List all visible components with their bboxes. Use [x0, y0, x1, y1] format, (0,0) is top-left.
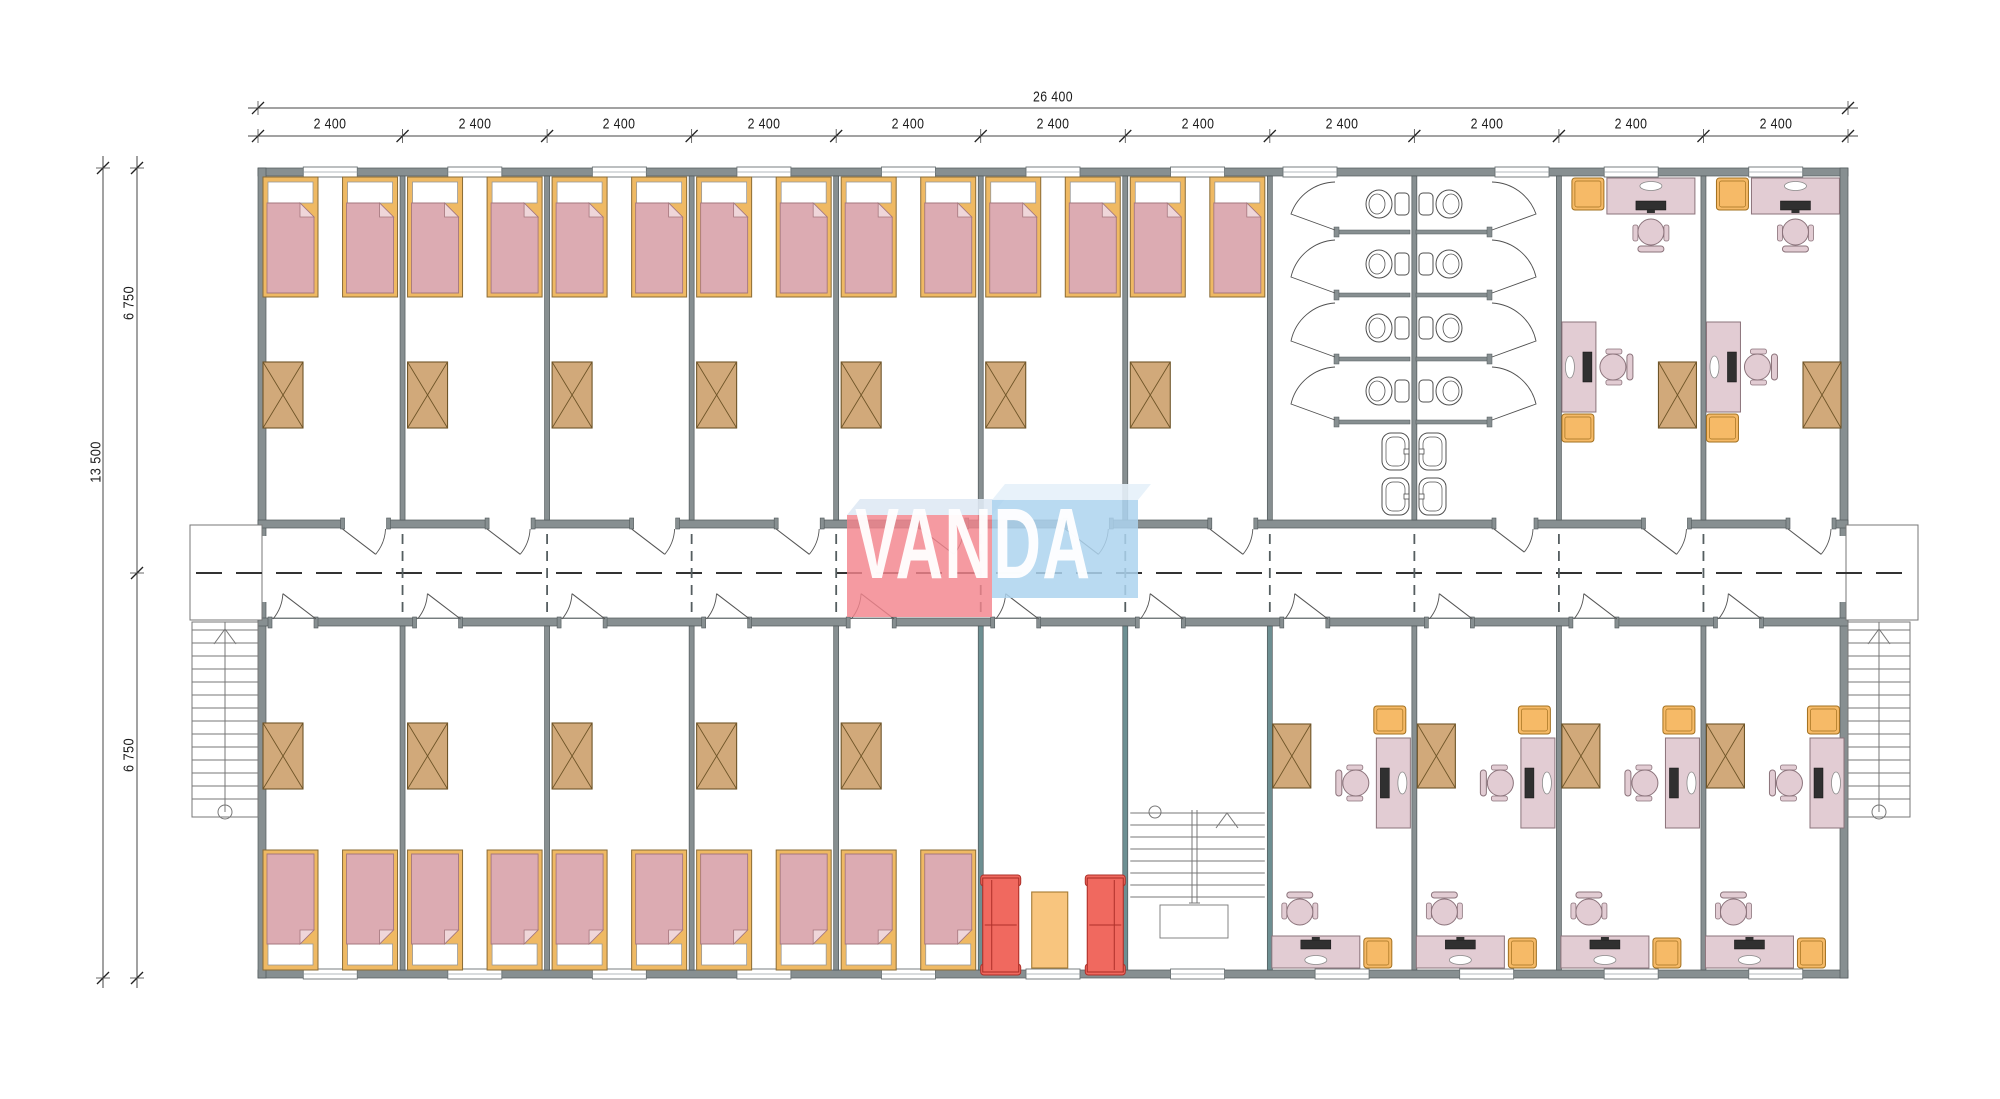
partition-wall-bottom [400, 626, 405, 970]
office-chair-part [1780, 796, 1796, 801]
door-leaf [1439, 594, 1472, 619]
door-opening [1426, 619, 1472, 629]
office-chair [1282, 892, 1318, 925]
wall-end-cap [1254, 518, 1258, 529]
wall-end-cap [557, 617, 561, 628]
dim-bay-label: 2 400 [1181, 116, 1214, 133]
office-chair-part [1431, 892, 1457, 898]
office-chair-part [1720, 892, 1746, 898]
office-chair-part [1633, 225, 1638, 241]
cabinet [1653, 938, 1681, 968]
dim-bay-label: 2 400 [603, 116, 636, 133]
wall-end-cap [413, 617, 417, 628]
bed-pillow [846, 944, 891, 965]
door-opening [1643, 519, 1689, 529]
computer-monitor [1525, 768, 1534, 798]
office-chair-part [1780, 765, 1796, 770]
computer-monitor [1734, 940, 1764, 949]
desk-item [1784, 182, 1806, 191]
wall-end-cap [1208, 518, 1212, 529]
stall-partition [1337, 357, 1410, 361]
computer-monitor [1380, 768, 1389, 798]
office-chair-part [1750, 380, 1766, 385]
door-leaf [632, 529, 665, 554]
computer-monitor [1583, 352, 1592, 382]
door-swing-arc [520, 529, 530, 554]
office-chair-part [1746, 903, 1751, 919]
office-chair [1480, 765, 1513, 801]
cabinet [1518, 706, 1550, 734]
door-opening [704, 619, 750, 629]
desk-item [1594, 956, 1616, 965]
wall-end-cap [1713, 617, 1717, 628]
office-chair [1715, 892, 1751, 925]
office-chair-part [1606, 380, 1622, 385]
dim-total-height-label: 13 500 [88, 441, 105, 483]
toilet-tank [1395, 253, 1409, 275]
monitor-stand [1456, 937, 1464, 940]
monitor-stand [1601, 937, 1609, 940]
cabinet [1807, 706, 1839, 734]
office-chair-part [1491, 765, 1507, 770]
monitor-stand [1745, 937, 1753, 940]
office-chair-part [1808, 225, 1813, 241]
stall-partition-cap [1334, 354, 1339, 364]
partition-wall-top [1556, 176, 1561, 520]
dim-bay-label: 2 400 [747, 116, 780, 133]
door-leaf [717, 594, 750, 619]
door-opening [921, 519, 967, 529]
dim-bay-label: 2 400 [1759, 116, 1792, 133]
dim-bay-label: 2 400 [1326, 116, 1359, 133]
office-chair-part [1632, 770, 1658, 796]
door-swing-arc [1524, 529, 1533, 552]
wall-end-cap [820, 518, 824, 529]
office-chair-part [1426, 903, 1431, 919]
partition-wall-bottom [1556, 626, 1561, 970]
door-swing-arc [1429, 594, 1439, 619]
door-swing-arc [1243, 529, 1253, 554]
office-chair-part [1491, 796, 1507, 801]
bed-pillow [1135, 182, 1180, 203]
wall-end-cap [1280, 617, 1284, 628]
wall-end-cap [531, 518, 535, 529]
desk-item [1640, 182, 1662, 191]
bed-pillow [492, 182, 537, 203]
partition-wall-top [1701, 176, 1706, 520]
bed-pillow [637, 944, 682, 965]
bed-pillow [926, 944, 971, 965]
stair-start-marker [1149, 806, 1161, 818]
stall-partition-cap [1487, 354, 1492, 364]
door-leaf [1728, 594, 1761, 619]
cabinet [1374, 706, 1406, 734]
door-leaf [776, 529, 809, 554]
door-leaf [861, 594, 894, 619]
computer-monitor [1636, 201, 1666, 210]
office-chair [1769, 765, 1802, 801]
office-chair [1744, 349, 1777, 385]
cabinet [1572, 178, 1604, 210]
cabinet [1716, 178, 1748, 210]
door-leaf [572, 594, 605, 619]
office-chair [1633, 219, 1669, 252]
door-opening [415, 619, 461, 629]
bed-pillow [702, 182, 747, 203]
office-chair-part [1638, 246, 1664, 252]
wall-end-cap [1569, 617, 1573, 628]
door-swing-arc [707, 594, 717, 619]
computer-monitor [1727, 352, 1736, 382]
office-chair-part [1638, 219, 1664, 245]
door-opening [848, 619, 894, 629]
bed-pillow [846, 182, 891, 203]
sink-faucet [1404, 449, 1409, 454]
wall-end-cap [1492, 518, 1496, 529]
office-chair-part [1625, 770, 1631, 796]
wall-end-cap [1109, 518, 1113, 529]
office-chair-part [1347, 765, 1363, 770]
wall-end-cap [1135, 617, 1139, 628]
bed-pillow [413, 182, 458, 203]
office-chair-part [1287, 899, 1313, 925]
dim-total-width-label: 26 400 [1033, 89, 1073, 106]
bed-pillow [781, 944, 826, 965]
stall-door [1291, 303, 1335, 357]
desk-item [1738, 956, 1760, 965]
door-swing-arc [954, 529, 964, 554]
office-chair-part [1431, 899, 1457, 925]
wall-end-cap [485, 518, 489, 529]
cabinet [1663, 706, 1695, 734]
computer-monitor [1445, 940, 1475, 949]
partition-wall-top [1123, 176, 1128, 520]
door-swing-arc [418, 594, 428, 619]
computer-monitor [1669, 768, 1678, 798]
coffee-table [1032, 892, 1068, 968]
desk-item [1565, 356, 1574, 378]
stall-door [1492, 240, 1536, 293]
wall-end-cap [1687, 518, 1691, 529]
door-opening [1494, 519, 1536, 529]
stall-partition [1416, 420, 1490, 424]
wall-end-cap [1786, 518, 1790, 529]
partition-wall-top [1267, 176, 1272, 520]
office-chair-part [1771, 354, 1777, 380]
partition-wall-bottom [1701, 626, 1706, 970]
office-chair-part [1347, 796, 1363, 801]
toilet-tank [1419, 380, 1433, 402]
floor-plan-drawing [0, 0, 2000, 1099]
door-leaf [1295, 594, 1328, 619]
partition-wall-bottom [834, 626, 839, 970]
desk-item [1832, 772, 1841, 794]
door-opening [1282, 619, 1328, 629]
office-chair-part [1480, 770, 1486, 796]
stair-direction-arrow [1216, 813, 1238, 828]
office-chair [1777, 219, 1813, 252]
wall-end-cap [774, 518, 778, 529]
wall-end-cap [1641, 518, 1645, 529]
toilet-tank [1395, 380, 1409, 402]
wall-end-cap [630, 518, 634, 529]
office-chair [1571, 892, 1607, 925]
office-chair-part [1313, 903, 1318, 919]
door-opening [270, 619, 316, 629]
office-chair [1600, 349, 1633, 385]
door-opening [1210, 519, 1256, 529]
wall-end-cap [1832, 518, 1836, 529]
cabinet [1797, 938, 1825, 968]
door-swing-arc [1140, 594, 1150, 619]
partition-wall-top [689, 176, 694, 520]
door-opening [632, 519, 678, 529]
bed-pillow [991, 182, 1036, 203]
door-swing-arc [809, 529, 819, 554]
dim-half-height-bottom-label: 6 750 [121, 738, 138, 772]
office-chair-part [1769, 770, 1775, 796]
toilet-tank [1395, 193, 1409, 215]
office-chair [1625, 765, 1658, 801]
door-leaf [1788, 529, 1821, 554]
dim-bay-label: 2 400 [1615, 116, 1648, 133]
door-leaf [427, 594, 460, 619]
stall-partition [1416, 293, 1490, 297]
door-leaf [1494, 529, 1524, 552]
partition-wall-top [834, 176, 839, 520]
door-swing-arc [1677, 529, 1687, 554]
bed-pillow [1215, 182, 1260, 203]
stall-door [1291, 367, 1335, 420]
bed-pillow [348, 182, 393, 203]
bed-pillow [348, 944, 393, 965]
office-chair-part [1606, 349, 1622, 354]
door-opening [1065, 519, 1111, 529]
door-swing-arc [562, 594, 572, 619]
stall-partition-cap [1334, 227, 1339, 237]
office-chair-part [1750, 349, 1766, 354]
office-chair-part [1602, 903, 1607, 919]
office-chair-part [1487, 770, 1513, 796]
bed-pillow [413, 944, 458, 965]
office-chair [1426, 892, 1462, 925]
toilet-tank [1419, 253, 1433, 275]
wall-end-cap [991, 617, 995, 628]
wall-end-cap [676, 518, 680, 529]
desk-item [1305, 956, 1327, 965]
partition-wall-bottom [1267, 626, 1272, 970]
computer-monitor [1814, 768, 1823, 798]
partition-wall-top [545, 176, 550, 520]
office-chair-part [1664, 225, 1669, 241]
door-swing-arc [665, 529, 675, 554]
door-swing-arc [1285, 594, 1295, 619]
dim-bay-label: 2 400 [1470, 116, 1503, 133]
partition-wall-bottom [689, 626, 694, 970]
monitor-stand [1647, 210, 1655, 213]
bed-pillow [781, 182, 826, 203]
wall-end-cap [1063, 518, 1067, 529]
door-swing-arc [1718, 594, 1728, 619]
bed-pillow [637, 182, 682, 203]
office-chair-part [1744, 354, 1770, 380]
door-leaf [343, 529, 376, 554]
toilet-tank [1419, 317, 1433, 339]
office-chair-part [1287, 892, 1313, 898]
door-leaf [1150, 594, 1183, 619]
bed-pillow [268, 182, 313, 203]
door-swing-arc [273, 594, 283, 619]
computer-monitor [1590, 940, 1620, 949]
door-opening [1137, 619, 1183, 629]
office-chair-part [1782, 219, 1808, 245]
office-chair-part [1282, 903, 1287, 919]
bed-pillow [926, 182, 971, 203]
stall-door [1492, 367, 1536, 420]
stall-partition [1337, 230, 1410, 234]
wall-end-cap [965, 518, 969, 529]
dim-bay-label: 2 400 [1037, 116, 1070, 133]
stall-partition [1416, 357, 1490, 361]
door-leaf [283, 594, 316, 619]
office-chair-part [1576, 892, 1602, 898]
cabinet [1364, 938, 1392, 968]
bed-pillow [702, 944, 747, 965]
office-chair-part [1636, 765, 1652, 770]
stall-door [1291, 182, 1335, 230]
stall-partition-cap [1487, 290, 1492, 300]
office-chair-part [1571, 903, 1576, 919]
wall-end-cap [1424, 617, 1428, 628]
wall-end-cap [387, 518, 391, 529]
wall-end-cap [919, 518, 923, 529]
office-chair-part [1457, 903, 1462, 919]
office-chair [1336, 765, 1369, 801]
door-swing-arc [996, 594, 1006, 619]
floor-plan-canvas: 26 400 2 4002 4002 4002 4002 4002 4002 4… [0, 0, 2000, 1099]
stall-partition-cap [1487, 417, 1492, 427]
door-leaf [1584, 594, 1617, 619]
dim-half-height-top-label: 6 750 [121, 286, 138, 320]
stall-door [1492, 182, 1536, 230]
door-leaf [1643, 529, 1676, 554]
door-leaf [1065, 529, 1098, 554]
office-chair-part [1636, 796, 1652, 801]
sink-faucet [1404, 494, 1409, 499]
office-chair-part [1627, 354, 1633, 380]
stair-void [1160, 905, 1228, 938]
dim-bay-label: 2 400 [892, 116, 925, 133]
wall-end-cap [268, 617, 272, 628]
office-chair-part [1576, 899, 1602, 925]
wall-end-cap [341, 518, 345, 529]
stall-door [1492, 303, 1536, 357]
door-swing-arc [1098, 529, 1108, 554]
door-swing-arc [1574, 594, 1584, 619]
door-swing-arc [851, 594, 861, 619]
bed-pillow [268, 944, 313, 965]
stall-partition [1337, 293, 1410, 297]
stall-partition-cap [1334, 290, 1339, 300]
bed-pillow [1070, 182, 1115, 203]
partition-wall-top [1412, 176, 1417, 520]
partition-wall-top [400, 176, 405, 520]
desk-item [1542, 772, 1551, 794]
toilet-tank [1419, 193, 1433, 215]
wall-end-cap [1534, 518, 1538, 529]
office-chair-part [1336, 770, 1342, 796]
partition-wall-bottom [1412, 626, 1417, 970]
door-opening [1715, 619, 1761, 629]
door-leaf [487, 529, 520, 554]
partition-wall-bottom [545, 626, 550, 970]
door-opening [487, 519, 533, 529]
office-chair-part [1777, 225, 1782, 241]
door-swing-arc [1821, 529, 1831, 554]
cabinet [1508, 938, 1536, 968]
door-opening [343, 519, 389, 529]
desk-item [1398, 772, 1407, 794]
desk-item [1687, 772, 1696, 794]
office-chair-part [1343, 770, 1369, 796]
computer-monitor [1301, 940, 1331, 949]
monitor-stand [1312, 937, 1320, 940]
door-opening [559, 619, 605, 629]
door-opening [776, 519, 822, 529]
bed-pillow [557, 182, 602, 203]
door-opening [1788, 519, 1834, 529]
wall-end-cap [702, 617, 706, 628]
stall-partition-cap [1487, 227, 1492, 237]
office-chair-part [1782, 246, 1808, 252]
dim-bay-label: 2 400 [314, 116, 347, 133]
door-leaf [1006, 594, 1039, 619]
cabinet [1706, 414, 1738, 442]
wall-end-cap [846, 617, 850, 628]
sink-faucet [1419, 449, 1424, 454]
door-opening [993, 619, 1039, 629]
sink-faucet [1419, 494, 1424, 499]
desk-item [1710, 356, 1719, 378]
toilet-tank [1395, 317, 1409, 339]
stall-partition [1337, 420, 1410, 424]
monitor-stand [1791, 210, 1799, 213]
stall-door [1291, 240, 1335, 293]
door-opening [1571, 619, 1617, 629]
bed-pillow [557, 944, 602, 965]
office-chair-part [1600, 354, 1626, 380]
stall-partition-cap [1334, 417, 1339, 427]
office-chair-part [1715, 903, 1720, 919]
dim-bay-label: 2 400 [458, 116, 491, 133]
door-swing-arc [376, 529, 386, 554]
cabinet [1562, 414, 1594, 442]
office-chair-part [1720, 899, 1746, 925]
door-leaf [921, 529, 954, 554]
office-chair-part [1776, 770, 1802, 796]
computer-monitor [1780, 201, 1810, 210]
bed-pillow [492, 944, 537, 965]
partition-wall-top [978, 176, 983, 520]
stall-partition [1416, 230, 1490, 234]
desk-item [1449, 956, 1471, 965]
door-leaf [1210, 529, 1243, 554]
